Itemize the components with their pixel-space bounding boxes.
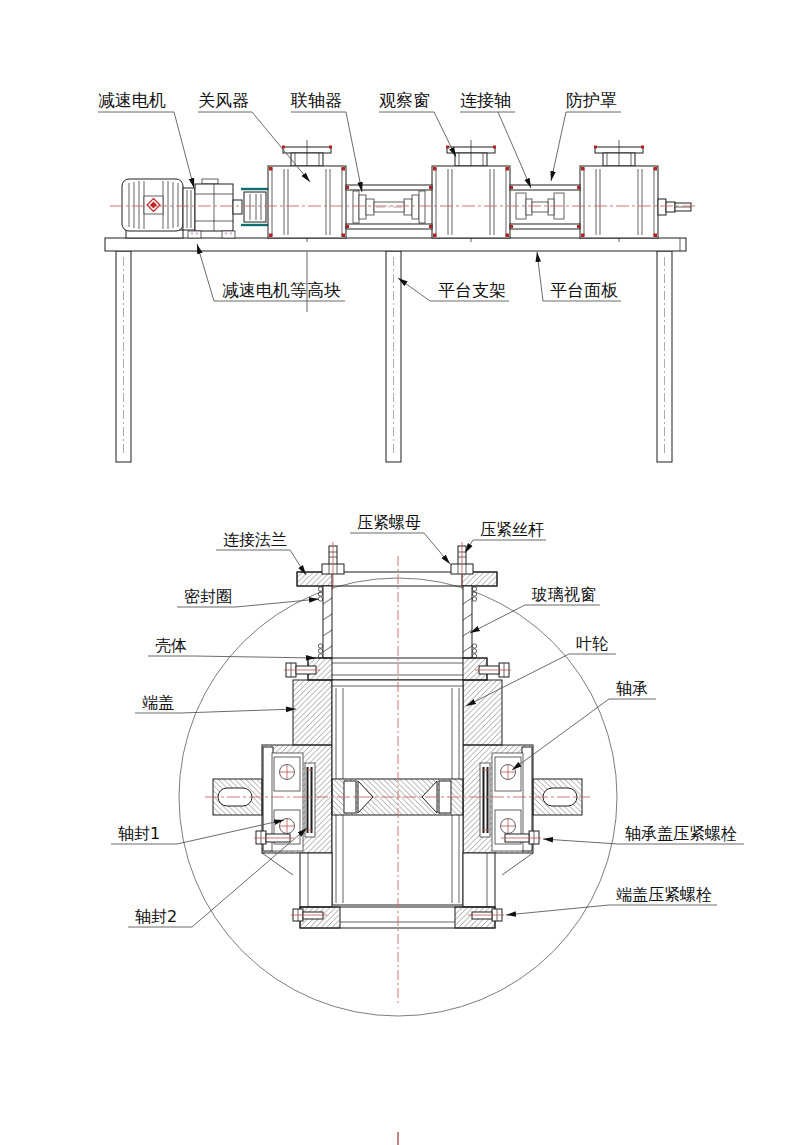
label-protective-cover: 防护罩 (566, 90, 617, 110)
section-view: 连接法兰 压紧螺母 压紧丝杆 密封圈 玻璃视窗 壳体 叶轮 端盖 轴承 轴封1 … (111, 513, 744, 1145)
rotary-valve-1 (268, 140, 346, 242)
motor-coupling (241, 189, 269, 225)
housing-wall-right (463, 680, 502, 745)
rotary-valve-2 (432, 140, 510, 242)
shaft-seal-right (480, 763, 490, 837)
motor-leveling-blocks (188, 231, 235, 238)
connecting-shaft-assembly (510, 185, 580, 229)
gearbox (183, 179, 242, 231)
platform-panel (105, 238, 686, 251)
label-housing: 壳体 (155, 636, 187, 655)
glass-window-cylinder (323, 586, 472, 658)
label-seal-ring: 密封圈 (184, 587, 232, 606)
shaft-seal-left (305, 763, 315, 837)
label-bearing: 轴承 (616, 679, 648, 698)
output-shaft (658, 199, 691, 215)
label-compression-screw: 压紧丝杆 (480, 520, 544, 539)
label-impeller: 叶轮 (576, 634, 608, 653)
label-compression-nut: 压紧螺母 (357, 513, 421, 532)
rotary-valve-3 (580, 140, 658, 242)
motor-brand-logo (144, 196, 163, 214)
label-motor-leveling-block: 减速电机等高块 (222, 280, 341, 300)
label-shaft-seal-1: 轴封1 (118, 824, 160, 843)
label-end-cover: 端盖 (142, 693, 174, 712)
label-shaft-seal-2: 轴封2 (135, 907, 177, 926)
top-view-elevation: 减速电机 关风器 联轴器 观察窗 连接轴 防护罩 减速电机等高块 平台支架 平台… (98, 90, 698, 462)
label-observation-window: 观察窗 (379, 90, 430, 110)
label-bearing-cover-bolt: 轴承盖压紧螺栓 (625, 824, 737, 843)
label-platform-panel: 平台面板 (550, 280, 618, 300)
housing-top-band (308, 658, 487, 680)
label-coupling: 联轴器 (290, 90, 342, 110)
engineering-drawing-page: 减速电机 关风器 联轴器 观察窗 连接轴 防护罩 减速电机等高块 平台支架 平台… (0, 0, 800, 1145)
label-connecting-flange: 连接法兰 (223, 530, 287, 549)
label-end-cover-bolt: 端盖压紧螺栓 (616, 885, 712, 904)
label-glass-window: 玻璃视窗 (531, 585, 596, 604)
seal-rings (318, 587, 476, 658)
label-gear-motor: 减速电机 (98, 90, 166, 110)
gear-motor (122, 179, 183, 238)
label-platform-support: 平台支架 (438, 280, 506, 300)
label-connecting-shaft: 连接轴 (460, 90, 511, 110)
housing-wall-left (293, 680, 332, 745)
label-rotary-valve: 关风器 (198, 90, 249, 110)
assembly-drawing-svg: 减速电机 关风器 联轴器 观察窗 连接轴 防护罩 减速电机等高块 平台支架 平台… (0, 0, 800, 1145)
shaft-coupling-assembly (346, 185, 432, 229)
